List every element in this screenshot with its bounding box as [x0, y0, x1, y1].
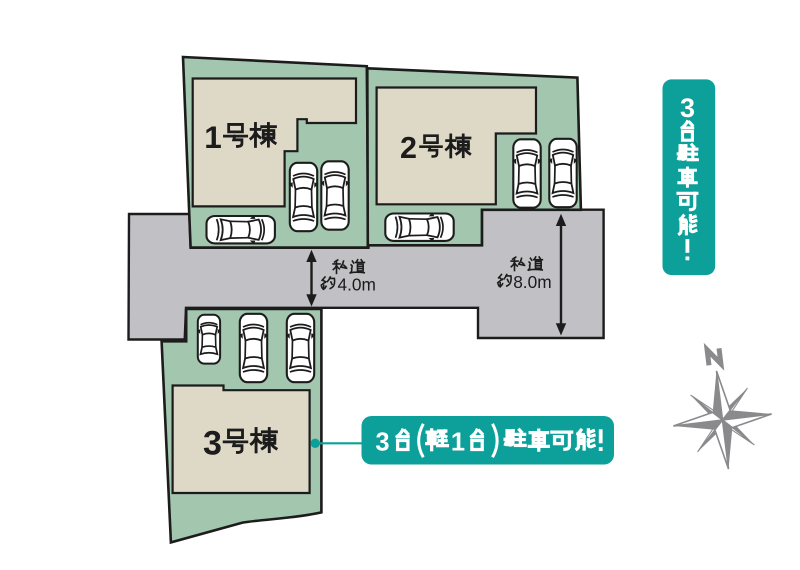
svg-text:4.0m: 4.0m	[338, 275, 376, 295]
svg-text:3: 3	[203, 425, 222, 463]
svg-text:1: 1	[204, 119, 222, 155]
svg-text:1: 1	[451, 428, 465, 456]
svg-text:2: 2	[400, 131, 417, 165]
svg-text:8.0m: 8.0m	[513, 272, 551, 292]
svg-text:3: 3	[375, 428, 389, 456]
svg-text:3: 3	[680, 93, 695, 123]
